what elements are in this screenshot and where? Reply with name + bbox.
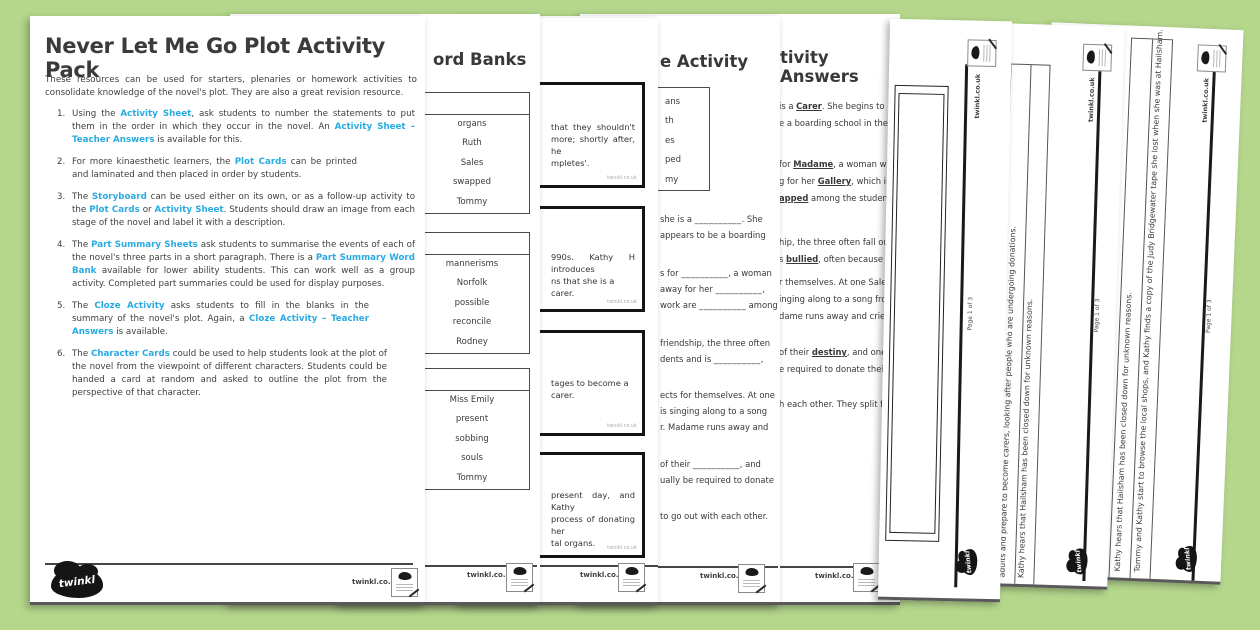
twinkl-quality-badge [1197,44,1227,72]
plot-card-text: present day, and Kathyprocess of donatin… [551,489,635,549]
word-bank-box: organsRuthSalesswappedTommy [414,92,530,214]
footer-divider [45,563,413,565]
twinkl-quality-badge [738,564,765,593]
word-bank-word: reconcile [415,313,529,332]
badge-cloud-icon [971,46,979,59]
word-banks-title: ord Banks [433,50,526,69]
page-number-label: Page 1 of 3 [968,297,975,331]
cloze-activity-title: e Activity [660,52,748,71]
answers-paragraph: is a Carer. She begins toe a boarding sc… [779,98,900,132]
badge-cloud-icon [513,567,526,575]
twinkl-logo: twinkl [1070,548,1088,575]
plot-card-text: that they shouldn'tmore; shortly after, … [551,121,635,169]
twinkl-quality-badge [506,563,533,592]
word-bank-word: Norfolk [415,274,529,293]
list-item-number: 2. [57,156,72,182]
site-url: twinkl.co.uk [974,74,981,119]
cloze-answers-title: tivity Answers [780,48,900,86]
page-number-label: Page 1 of 3 [1206,299,1213,333]
list-item-number: 6. [57,348,72,400]
cover-list-item: 5.The Cloze Activity asks students to fi… [57,300,369,339]
list-item-text: The Character Cards could be used to hel… [72,348,387,400]
cloze-paragraph: to go out with each other. [660,508,780,524]
card-site-url: twinkl.co.uk [607,423,637,429]
word-bank-box: mannerismsNorfolkpossiblereconcileRodney [414,232,530,354]
list-item-number: 5. [57,300,72,339]
word-bank-word: sobbing [415,430,529,449]
page-number-label: Page 1 of 3 [1094,299,1101,333]
cover-list-item: 6.The Character Cards could be used to h… [57,348,387,400]
list-item-text: Using the Activity Sheet, ask students t… [72,108,415,147]
badge-cloud-icon [860,567,873,575]
list-item-number: 1. [57,108,72,147]
cover-list-item: 1.Using the Activity Sheet, ask students… [57,108,415,147]
twinkl-quality-badge [967,39,997,67]
cover-list-item: 2.For more kinaesthetic learners, the Pl… [57,156,357,182]
page-storyboard: twinkl.co.uk Page 1 of 3 twinkl [878,19,1012,602]
twinkl-quality-badge [391,568,418,597]
word-bank-word: Ruth [415,134,529,153]
twinkl-quality-badge [618,563,645,592]
badge-cloud-icon [398,572,411,580]
badge-cloud-icon [1201,52,1210,65]
plot-card-text: 990s. Kathy H introducesns that she is a… [551,251,635,299]
cloze-paragraph: ects for themselves. At oneis singing al… [660,387,780,435]
list-item-number: 3. [57,191,72,230]
word-bank-word: souls [415,449,529,468]
list-item-number: 4. [57,239,72,291]
twinkl-logo: twinkl [1179,546,1197,573]
twinkl-quality-badge [1082,44,1112,72]
word-bank-header [415,93,529,115]
card-site-url: twinkl.co.uk [607,545,637,551]
list-item-text: The Storyboard can be used either on its… [72,191,415,230]
list-item-text: The Part Summary Sheets ask students to … [72,239,415,291]
cloze-paragraph: of their __________, andually be require… [660,456,780,488]
word-bank-word: mannerisms [415,255,529,274]
card-site-url: twinkl.co.uk [607,299,637,305]
word-bank-word: possible [415,294,529,313]
page-cover: Never Let Me Go Plot Activity Pack These… [30,16,425,605]
answers-paragraph: hip, the three often fall outs bullied, … [779,234,900,268]
list-item-text: For more kinaesthetic learners, the Plot… [72,156,357,182]
word-bank-word: Sales [415,154,529,173]
word-bank-word: present [415,410,529,429]
badge-cloud-icon [1087,51,1095,64]
footer-divider-rotated [954,64,967,587]
plot-card-text: tages to become a carer. [551,377,635,401]
resource-preview-stage: ord Banks organsRuthSalesswappedTommy ma… [0,0,1260,630]
twinkl-logo: twinkl [960,549,978,575]
word-bank-header [415,233,529,255]
storyboard-frame-inner [889,93,944,534]
word-bank-word: swapped [415,173,529,192]
answers-paragraph: for Madame, a woman whog for her Gallery… [779,156,900,207]
word-bank-word: Tommy [415,193,529,212]
cover-instructions-list: 1.Using the Activity Sheet, ask students… [57,108,419,409]
list-item-text: The Cloze Activity asks students to fill… [72,300,369,339]
word-bank-box: Miss EmilypresentsobbingsoulsTommy [414,368,530,490]
word-bank-word: Tommy [415,469,529,488]
site-url: twinkl.co.uk [1088,77,1096,122]
twinkl-quality-badge [853,563,880,592]
badge-cloud-icon [745,568,758,576]
answers-paragraph: r themselves. At one Sale,inging along t… [779,274,900,325]
cover-list-item: 4.The Part Summary Sheets ask students t… [57,239,415,291]
cover-intro: These resources can be used for starters… [45,74,417,100]
badge-cloud-icon [625,567,638,575]
word-bank-word: Rodney [415,333,529,352]
word-bank-word: Miss Emily [415,391,529,410]
cover-list-item: 3.The Storyboard can be used either on i… [57,191,415,230]
card-site-url: twinkl.co.uk [607,175,637,181]
cloze-paragraph: she is a __________. Sheappears to be a … [660,211,780,243]
twinkl-logo: twinkl [51,568,103,598]
site-url: twinkl.co.uk [1202,78,1210,123]
cloze-paragraph: s for __________, a womanaway for her __… [660,265,780,313]
word-bank-header [415,369,529,391]
cloze-paragraph: friendship, the three oftendents and is … [660,335,780,367]
word-bank-word: organs [415,115,529,134]
